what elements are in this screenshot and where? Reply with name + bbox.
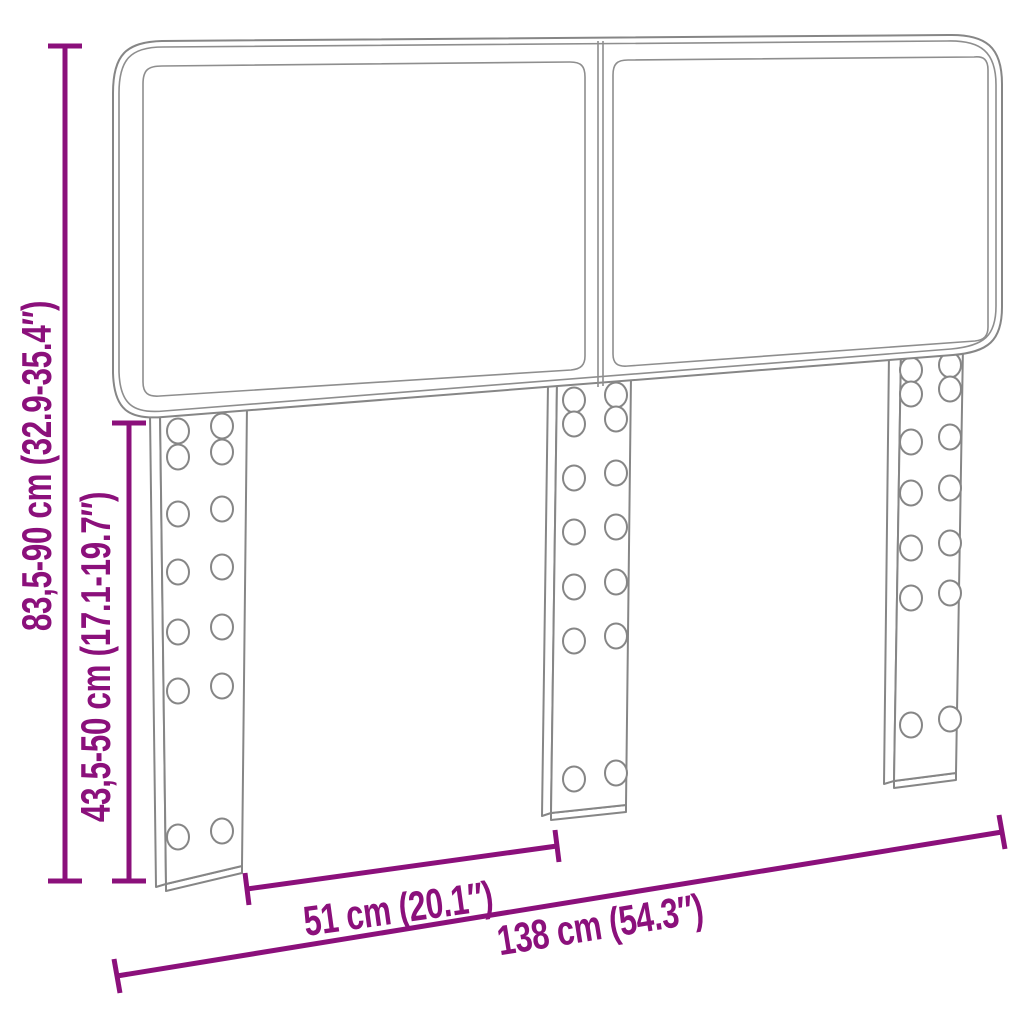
leg-left-front-face: [160, 405, 247, 884]
dimension-leg-height: 43,5-50 cm (17.1-19.7″): [72, 423, 146, 881]
mounting-hole: [563, 466, 585, 491]
mounting-hole: [211, 819, 233, 844]
mounting-hole: [605, 383, 627, 408]
dimension-label-total-height: 83,5-90 cm (32.9-35.4″): [13, 301, 61, 631]
mounting-hole: [939, 531, 961, 556]
mounting-hole: [900, 430, 922, 455]
dimension-line-leg-spacing: [247, 846, 557, 889]
mounting-hole: [939, 377, 961, 402]
dimension-cap: [245, 873, 249, 905]
leg-center: [542, 376, 631, 820]
mounting-hole: [211, 674, 233, 699]
mounting-hole: [167, 502, 189, 527]
mounting-hole: [167, 560, 189, 585]
mounting-hole: [900, 536, 922, 561]
dimension-cap: [999, 815, 1005, 849]
diagram-canvas: 83,5-90 cm (32.9-35.4″) 43,5-50 cm (17.1…: [0, 0, 1024, 1024]
dimension-label-leg-spacing: 51 cm (20.1″): [300, 872, 495, 945]
headboard-dimension-diagram: 83,5-90 cm (32.9-35.4″) 43,5-50 cm (17.1…: [0, 0, 1024, 1024]
mounting-hole: [167, 679, 189, 704]
mounting-hole: [211, 414, 233, 439]
leg-right: [884, 346, 963, 788]
mounting-hole: [605, 624, 627, 649]
mounting-hole: [211, 555, 233, 580]
mounting-hole: [167, 445, 189, 470]
dimension-cap: [114, 959, 120, 993]
mounting-hole: [939, 581, 961, 606]
mounting-hole: [900, 382, 922, 407]
mounting-hole: [167, 419, 189, 444]
mounting-hole: [939, 707, 961, 732]
mounting-hole: [900, 481, 922, 506]
mounting-hole: [211, 440, 233, 465]
mounting-hole: [605, 461, 627, 486]
mounting-hole: [605, 407, 627, 432]
mounting-hole: [900, 358, 922, 383]
mounting-hole: [605, 570, 627, 595]
dimension-cap: [555, 830, 559, 862]
mounting-hole: [563, 412, 585, 437]
mounting-hole: [605, 515, 627, 540]
mounting-hole: [563, 767, 585, 792]
headboard: [113, 35, 1002, 418]
headboard-outer-outline: [113, 35, 1002, 418]
mounting-hole: [563, 629, 585, 654]
mounting-hole: [563, 520, 585, 545]
mounting-hole: [605, 761, 627, 786]
mounting-hole: [211, 615, 233, 640]
mounting-hole: [211, 497, 233, 522]
mounting-hole: [563, 388, 585, 413]
mounting-hole: [167, 620, 189, 645]
leg-left: [150, 405, 247, 891]
mounting-hole: [900, 586, 922, 611]
mounting-hole: [563, 575, 585, 600]
mounting-hole: [900, 713, 922, 738]
dimension-label-leg-height: 43,5-50 cm (17.1-19.7″): [72, 492, 120, 822]
mounting-hole: [939, 476, 961, 501]
mounting-hole: [167, 825, 189, 850]
mounting-hole: [939, 425, 961, 450]
